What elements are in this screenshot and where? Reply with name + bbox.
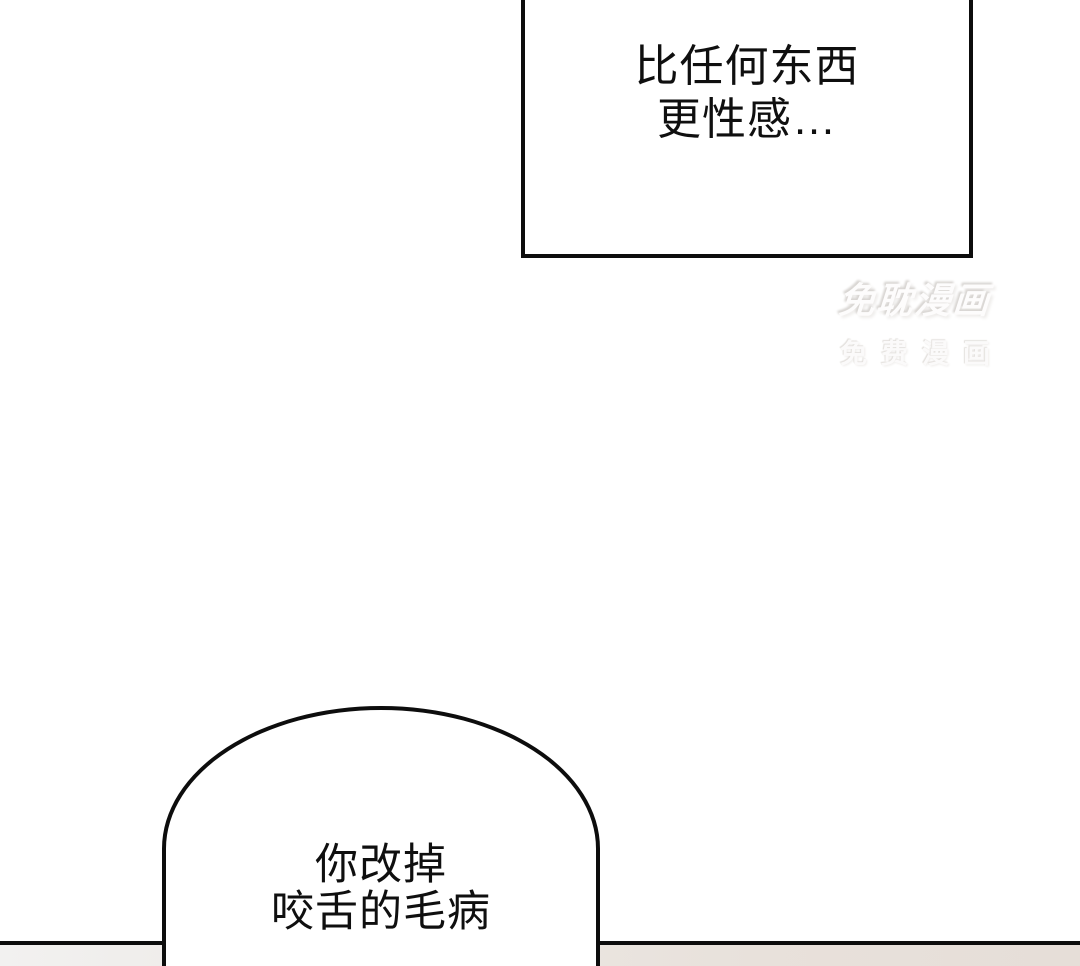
speech-bubble-text: 你改掉 咬舌的毛病 — [166, 842, 596, 936]
speech-bubble: 你改掉 咬舌的毛病 — [162, 706, 600, 966]
caption-line-1: 比任何东西 — [525, 40, 969, 93]
watermark-sub-text: 免费漫画 — [800, 332, 1030, 371]
caption-box-text: 比任何东西 更性感… — [525, 40, 969, 146]
comic-page: 比任何东西 更性感… 免耽漫画 免费漫画 你改掉 咬舌的毛病 — [0, 0, 1080, 966]
watermark-main-text: 免耽漫画 — [798, 272, 1032, 324]
site-watermark: 免耽漫画 免费漫画 — [800, 272, 1030, 371]
caption-line-2: 更性感… — [525, 93, 969, 146]
caption-box: 比任何东西 更性感… — [521, 0, 973, 258]
bubble-line-2: 咬舌的毛病 — [166, 889, 596, 936]
bubble-line-1: 你改掉 — [166, 842, 596, 889]
